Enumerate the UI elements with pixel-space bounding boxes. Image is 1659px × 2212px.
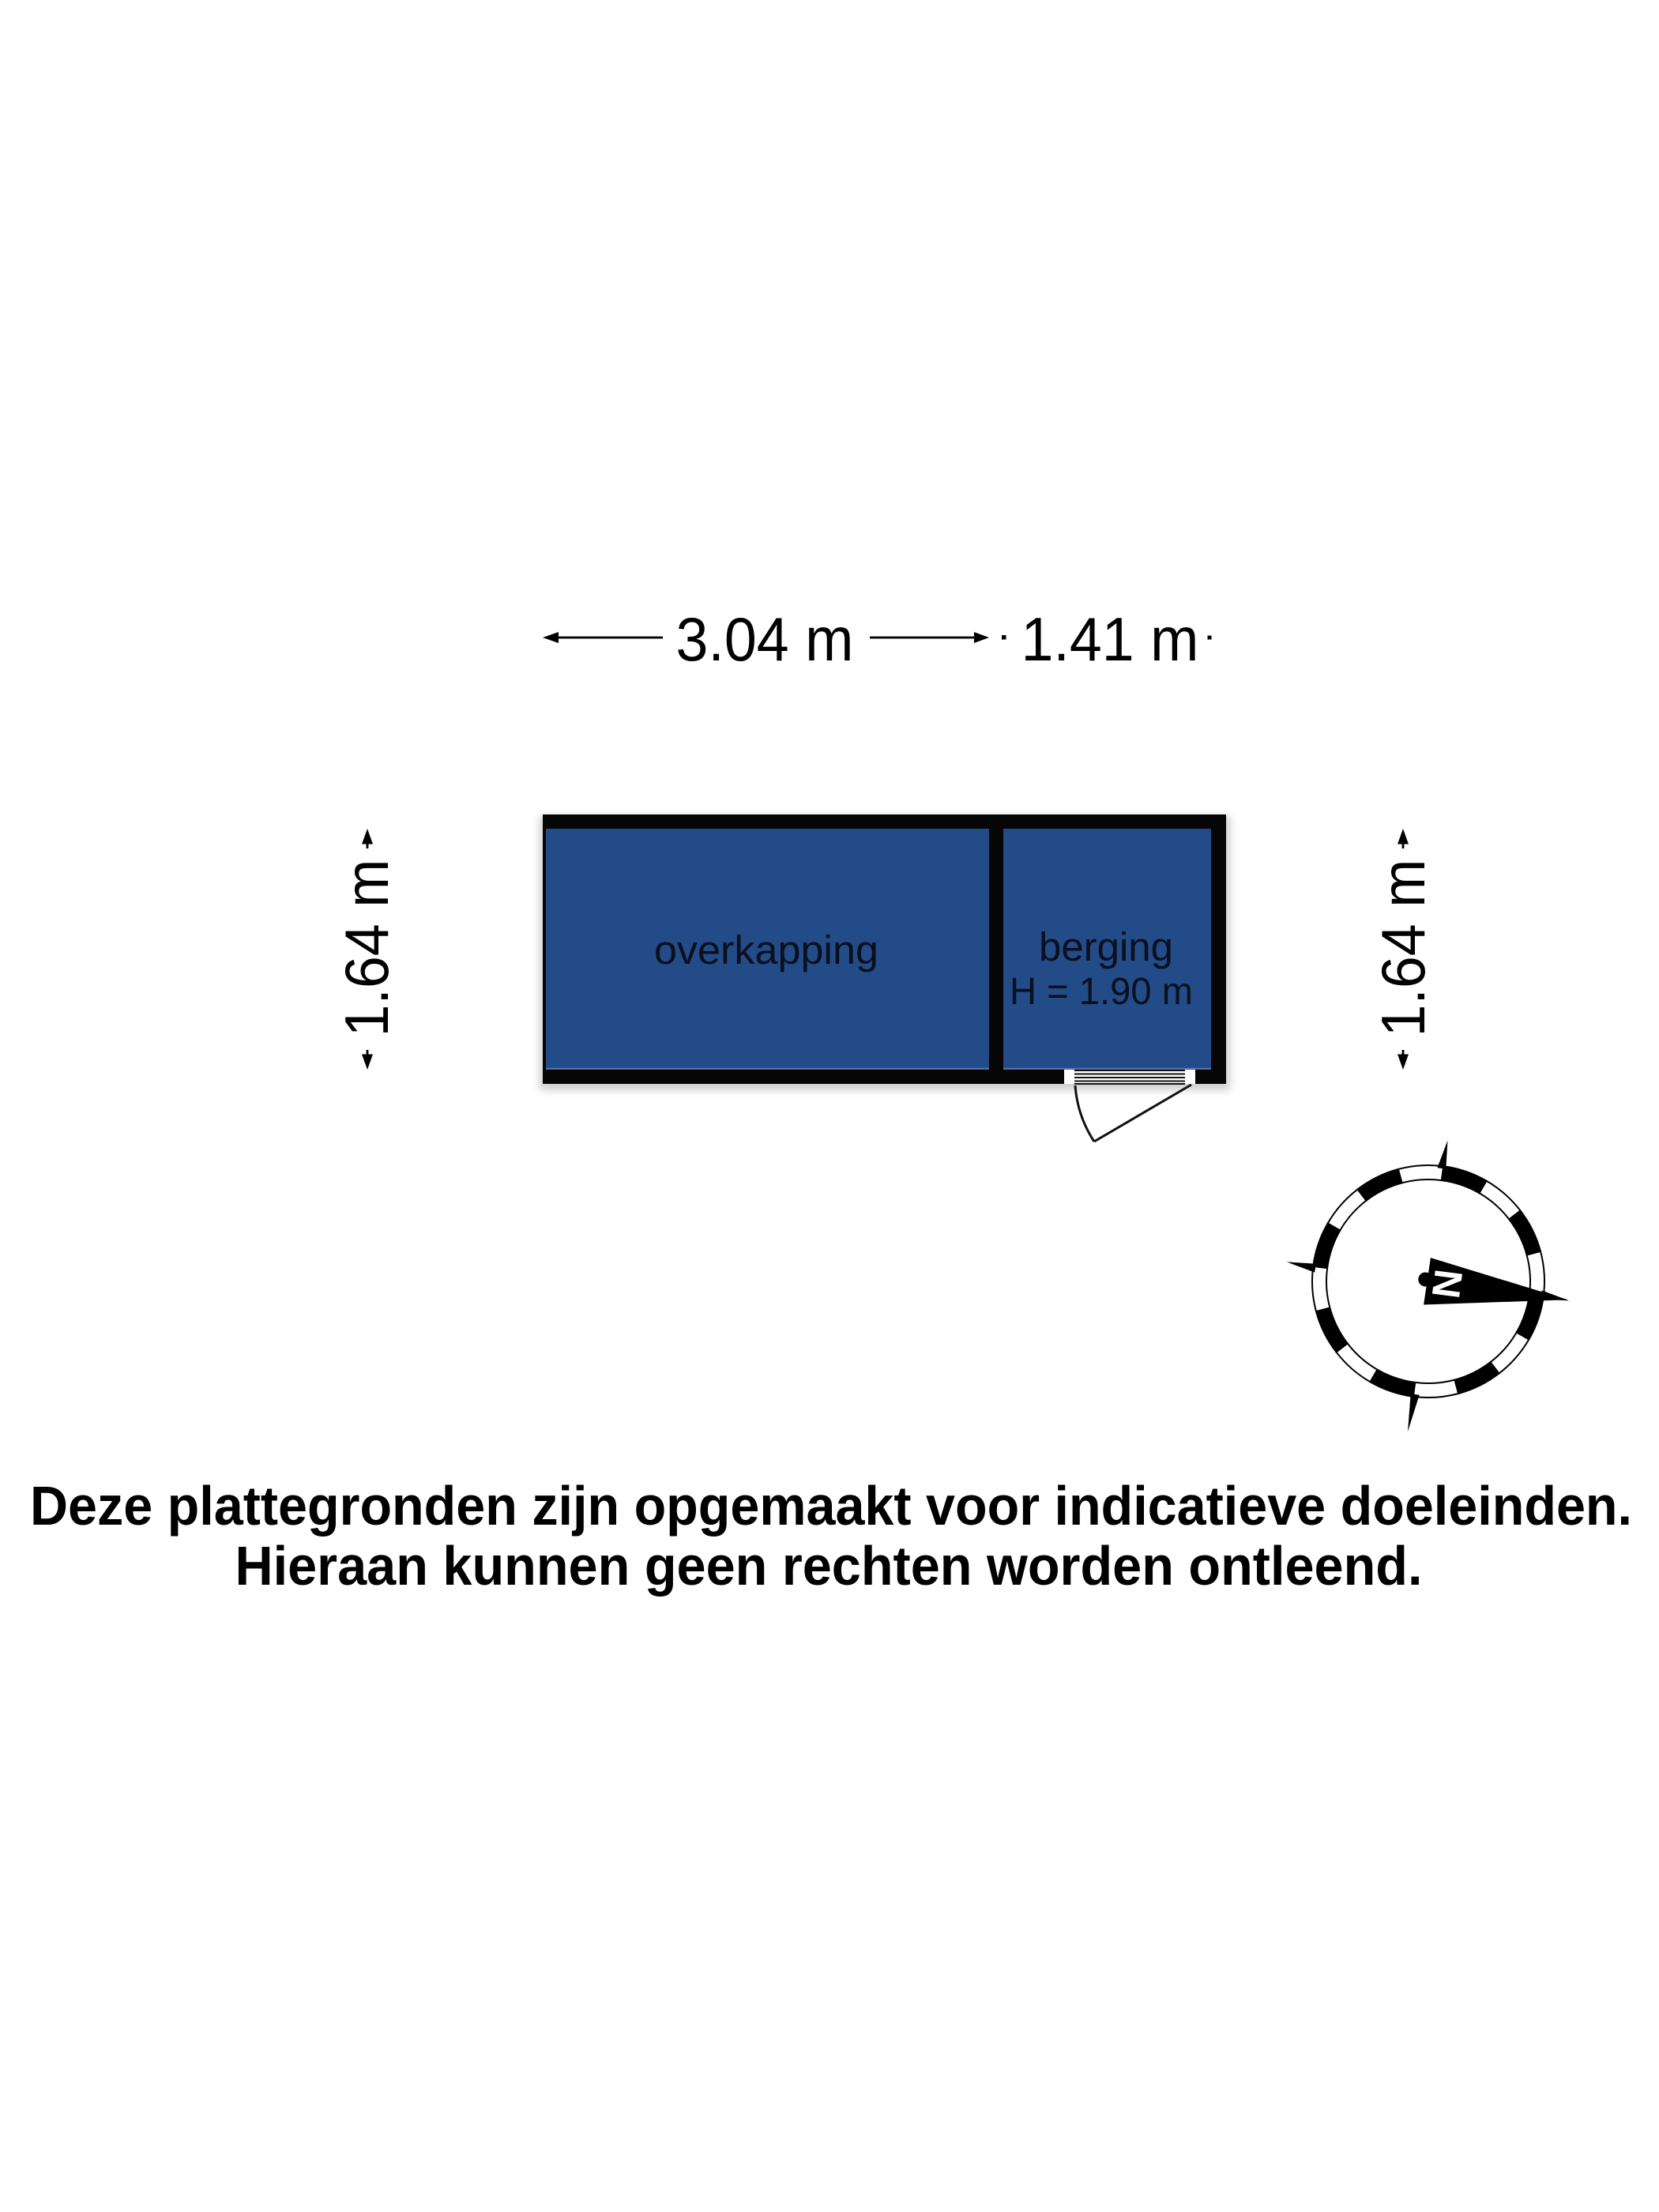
svg-text:3.04 m: 3.04 m: [676, 604, 854, 674]
svg-text:1.64 m: 1.64 m: [332, 860, 401, 1037]
svg-text:overkapping: overkapping: [654, 927, 878, 972]
svg-text:N: N: [1424, 1267, 1471, 1301]
svg-text:1.41 m: 1.41 m: [1021, 604, 1199, 674]
svg-text:berging: berging: [1039, 924, 1173, 969]
svg-text:Hieraan kunnen geen rechten wo: Hieraan kunnen geen rechten worden ontle…: [235, 1535, 1423, 1597]
svg-text:H = 1.90 m: H = 1.90 m: [1010, 971, 1193, 1013]
svg-text:Deze plattegronden zijn opgema: Deze plattegronden zijn opgemaakt voor i…: [30, 1475, 1632, 1537]
svg-text:1.64 m: 1.64 m: [1368, 860, 1438, 1037]
